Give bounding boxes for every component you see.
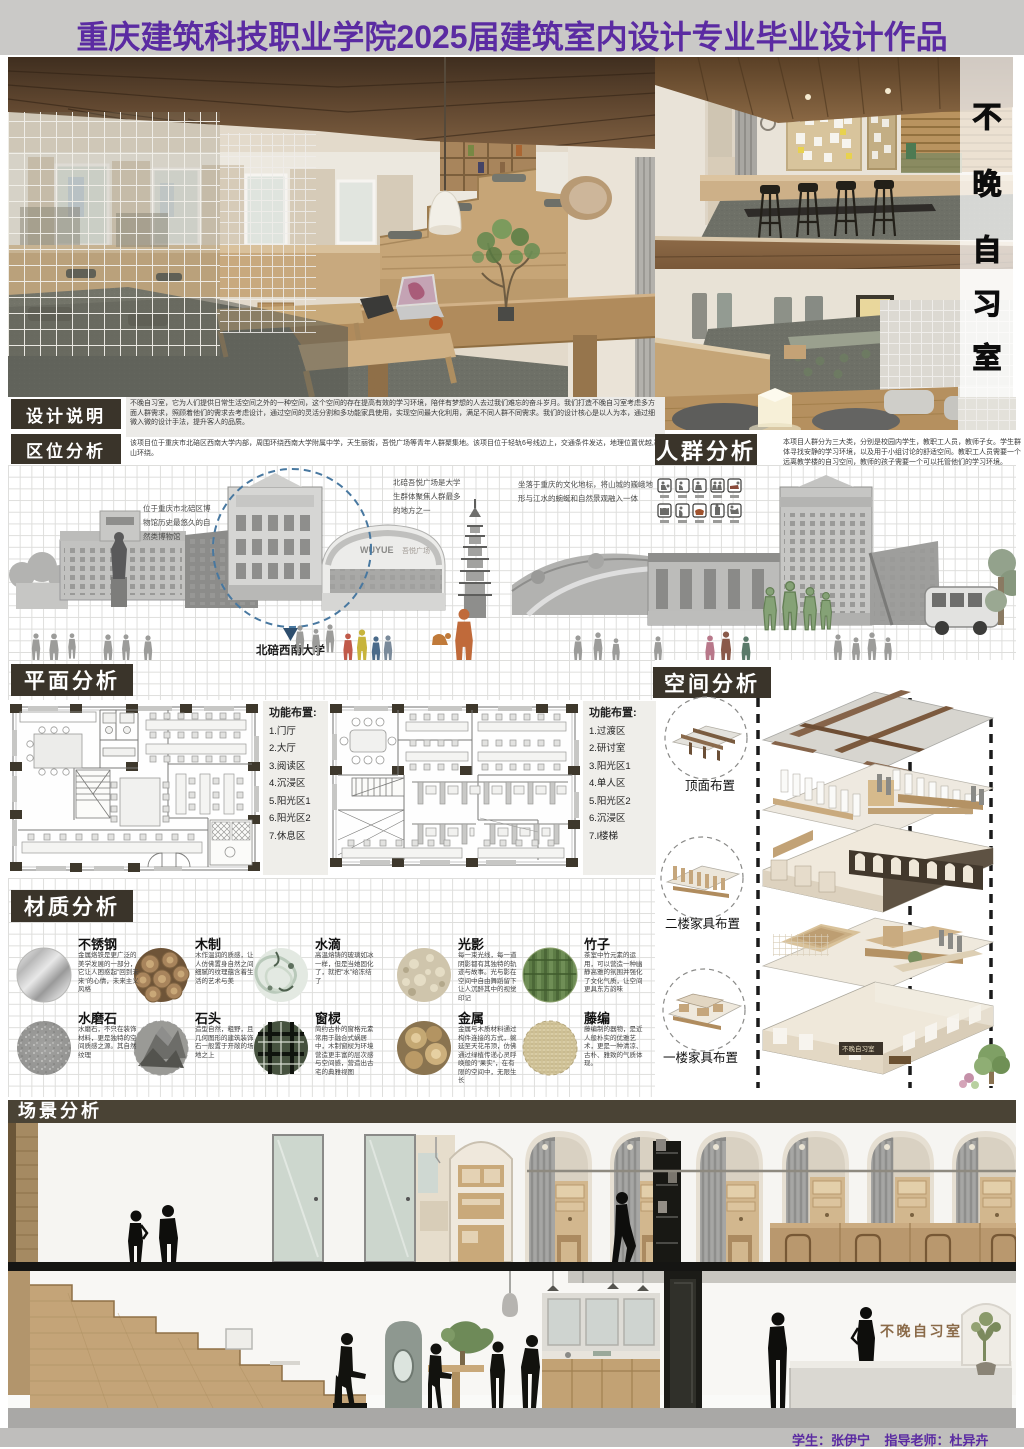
svg-text:坐落于重庆的文化地标，将山城的巍峨地形与江水的蜿蜒和自然景观: 坐落于重庆的文化地标，将山城的巍峨地形与江水的蜿蜒和自然景观融入一体 — [518, 479, 653, 503]
svg-text:晚: 晚 — [972, 168, 1001, 201]
svg-text:一楼家具布置: 一楼家具布置 — [663, 1050, 738, 1065]
svg-text:WUYUE: WUYUE — [360, 545, 394, 555]
svg-text:顶面布置: 顶面布置 — [685, 779, 735, 793]
svg-text:室: 室 — [972, 341, 1001, 375]
svg-text:习: 习 — [972, 289, 1001, 321]
svg-text:北碚吾悦广场是大学生群体聚焦人群最多的地方之一: 北碚吾悦广场是大学生群体聚焦人群最多的地方之一 — [393, 477, 461, 515]
svg-text:不晚自习室: 不晚自习室 — [842, 1044, 875, 1053]
svg-text:吾悦广场: 吾悦广场 — [402, 546, 430, 555]
svg-text:不: 不 — [972, 102, 1001, 134]
svg-text:自: 自 — [972, 234, 1001, 267]
svg-text:不晚自习室: 不晚自习室 — [880, 1323, 963, 1339]
svg-text:二楼家具布置: 二楼家具布置 — [665, 916, 740, 931]
